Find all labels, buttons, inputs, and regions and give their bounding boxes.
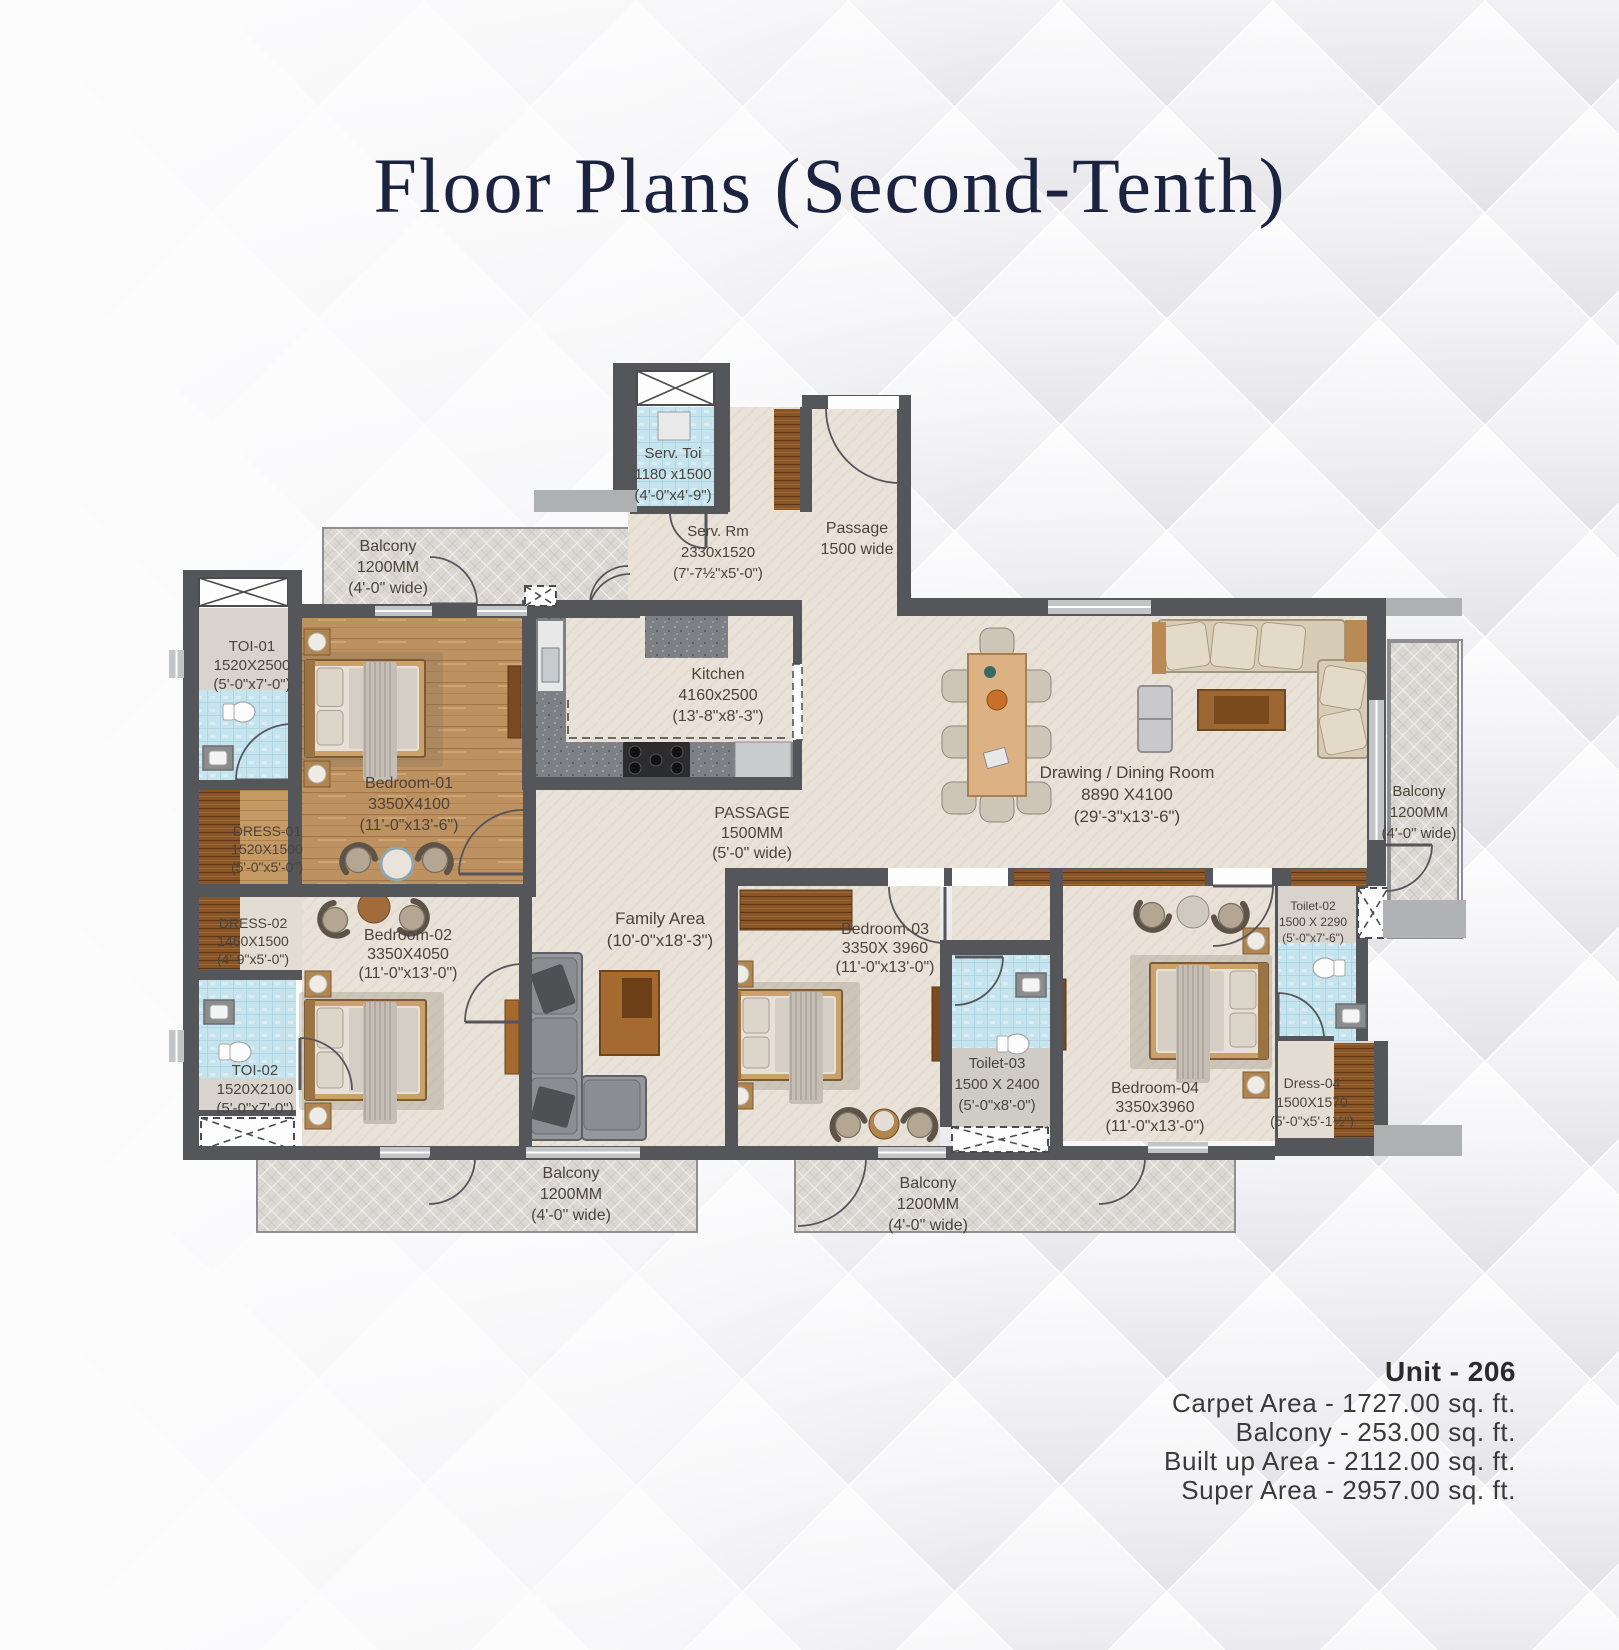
svg-text:(4'-0" wide): (4'-0" wide) [348, 580, 428, 597]
svg-text:TOI-01: TOI-01 [229, 638, 275, 655]
svg-text:Unit - 206: Unit - 206 [1385, 1356, 1516, 1387]
svg-text:(5'-0"x5'-1½"): (5'-0"x5'-1½") [1270, 1113, 1354, 1129]
svg-text:(5'-0" wide): (5'-0" wide) [712, 845, 792, 862]
svg-text:3350X4050: 3350X4050 [367, 946, 449, 963]
svg-text:(5'-0"x7'-0"): (5'-0"x7'-0") [216, 1100, 293, 1117]
svg-text:Floor Plans (Second-Tenth): Floor Plans (Second-Tenth) [373, 142, 1286, 229]
svg-text:3350X4100: 3350X4100 [368, 796, 450, 813]
svg-text:3350X 3960: 3350X 3960 [842, 940, 928, 957]
svg-text:1200MM: 1200MM [1390, 804, 1448, 821]
svg-text:Balcony: Balcony [1392, 783, 1446, 800]
svg-text:(11'-0"x13'-0"): (11'-0"x13'-0") [1106, 1118, 1205, 1135]
svg-text:1200MM: 1200MM [357, 559, 419, 576]
svg-text:DRESS-01: DRESS-01 [233, 823, 302, 839]
svg-text:1500 wide: 1500 wide [821, 541, 894, 558]
svg-text:(10'-0"x18'-3"): (10'-0"x18'-3") [607, 931, 713, 950]
svg-text:8890 X4100: 8890 X4100 [1081, 785, 1173, 804]
svg-text:Serv. Rm: Serv. Rm [687, 523, 748, 540]
svg-text:(4'-0"x4'-9"): (4'-0"x4'-9") [634, 487, 711, 504]
svg-text:1500X1570: 1500X1570 [1276, 1094, 1348, 1110]
svg-text:4160x2500: 4160x2500 [678, 687, 757, 704]
svg-text:1500 X 2400: 1500 X 2400 [954, 1076, 1039, 1093]
svg-text:(7'-7½"x5'-0"): (7'-7½"x5'-0") [673, 565, 763, 582]
svg-text:(5'-0"x7'-6"): (5'-0"x7'-6") [1282, 931, 1344, 945]
svg-text:Bedroom-01: Bedroom-01 [365, 775, 453, 792]
svg-text:1520X2100: 1520X2100 [217, 1081, 294, 1098]
svg-text:Bedroom-04: Bedroom-04 [1111, 1080, 1199, 1097]
svg-text:Toilet-03: Toilet-03 [969, 1055, 1026, 1072]
svg-text:Balcony: Balcony [543, 1165, 600, 1182]
svg-text:3350x3960: 3350x3960 [1115, 1099, 1194, 1116]
svg-text:Balcony: Balcony [360, 538, 417, 555]
svg-text:(4'-0" wide): (4'-0" wide) [888, 1217, 968, 1234]
svg-text:2330x1520: 2330x1520 [681, 544, 755, 561]
svg-text:TOI-02: TOI-02 [232, 1062, 278, 1079]
svg-text:Drawing / Dining Room: Drawing / Dining Room [1040, 763, 1215, 782]
svg-text:1520X2500: 1520X2500 [214, 657, 291, 674]
svg-text:(4'-0" wide): (4'-0" wide) [1382, 825, 1457, 842]
svg-text:(5'-0"x7'-0"): (5'-0"x7'-0") [213, 676, 290, 693]
svg-text:Kitchen: Kitchen [691, 666, 744, 683]
svg-text:1460X1500: 1460X1500 [217, 933, 289, 949]
svg-text:Carpet Area - 1727.00 sq. ft.: Carpet Area - 1727.00 sq. ft. [1172, 1388, 1516, 1418]
svg-text:(4'-0" wide): (4'-0" wide) [531, 1207, 611, 1224]
svg-text:(11'-0"x13'-6"): (11'-0"x13'-6") [360, 817, 459, 834]
svg-text:(29'-3"x13'-6"): (29'-3"x13'-6") [1074, 807, 1180, 826]
svg-text:Super Area - 2957.00 sq. ft.: Super Area - 2957.00 sq. ft. [1181, 1475, 1516, 1505]
svg-text:DRESS-02: DRESS-02 [219, 915, 288, 931]
svg-text:Serv. Toi: Serv. Toi [645, 445, 702, 462]
svg-text:Balcony: Balcony [900, 1175, 957, 1192]
svg-text:1200MM: 1200MM [897, 1196, 959, 1213]
svg-text:Dress-04: Dress-04 [1284, 1075, 1341, 1091]
svg-text:(11'-0"x13'-0"): (11'-0"x13'-0") [359, 965, 458, 982]
svg-text:1180 x1500: 1180 x1500 [634, 466, 711, 483]
svg-text:1500MM: 1500MM [721, 825, 783, 842]
svg-text:1500 X 2290: 1500 X 2290 [1279, 915, 1347, 929]
svg-text:Bedroom-03: Bedroom-03 [841, 921, 929, 938]
svg-text:(5'-0"x8'-0"): (5'-0"x8'-0") [958, 1097, 1035, 1114]
svg-text:Passage: Passage [826, 520, 888, 537]
svg-text:Built up Area - 2112.00 sq. ft: Built up Area - 2112.00 sq. ft. [1164, 1446, 1516, 1476]
svg-text:(11'-0"x13'-0"): (11'-0"x13'-0") [836, 959, 935, 976]
svg-text:(13'-8"x8'-3"): (13'-8"x8'-3") [672, 708, 763, 725]
svg-text:1200MM: 1200MM [540, 1186, 602, 1203]
svg-text:1520X1500: 1520X1500 [231, 841, 303, 857]
svg-text:PASSAGE: PASSAGE [714, 805, 789, 822]
svg-text:Balcony - 253.00 sq. ft.: Balcony - 253.00 sq. ft. [1236, 1417, 1516, 1447]
svg-text:Bedroom-02: Bedroom-02 [364, 927, 452, 944]
svg-text:(4'-9"x5'-0"): (4'-9"x5'-0") [217, 951, 289, 967]
svg-text:Toilet-02: Toilet-02 [1290, 899, 1336, 913]
svg-text:(5'-0"x5'-0"): (5'-0"x5'-0") [231, 859, 303, 875]
svg-text:Family Area: Family Area [615, 909, 705, 928]
